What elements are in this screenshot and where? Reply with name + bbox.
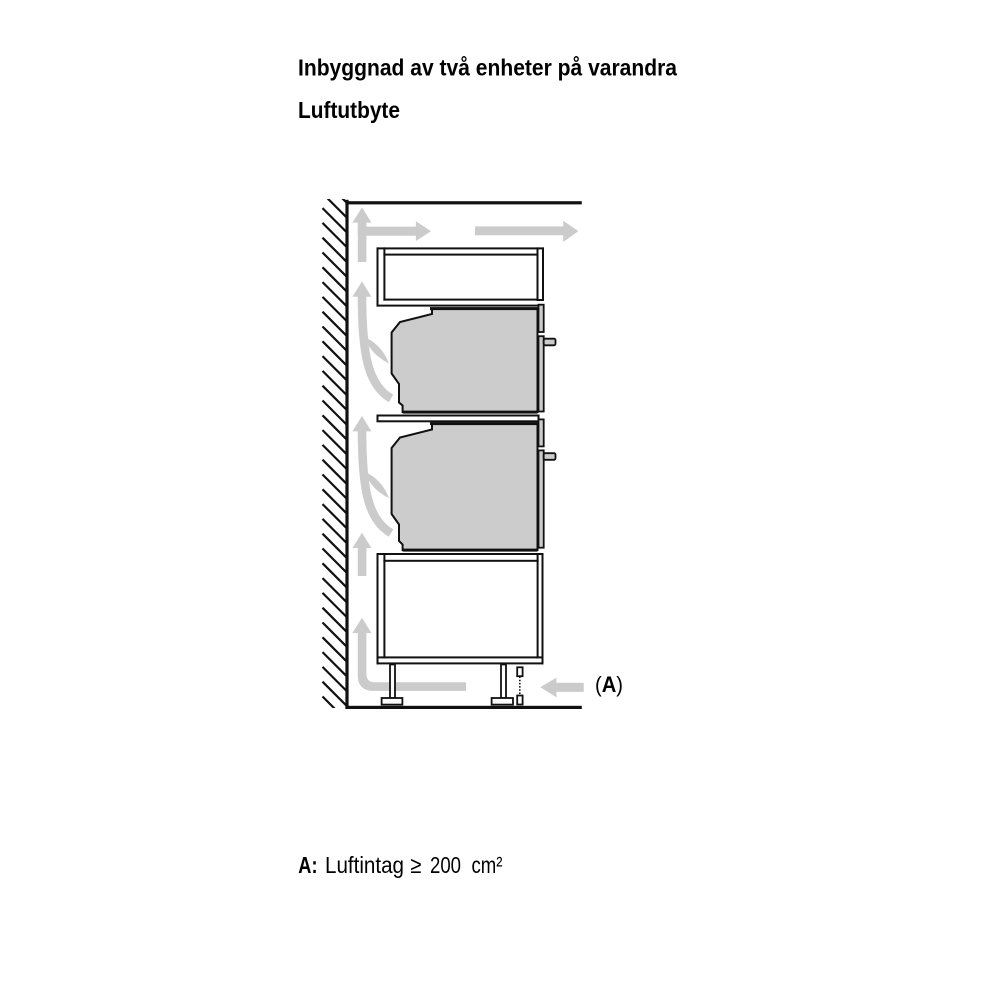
svg-text:Inbyggnad av två enheter på va: Inbyggnad av två enheter på varandra	[298, 55, 678, 81]
svg-text:(A): (A)	[595, 672, 623, 697]
svg-text:200: 200	[430, 852, 461, 878]
svg-text:Luftintag: Luftintag	[325, 852, 404, 878]
svg-text:≥: ≥	[411, 852, 422, 878]
svg-text:Luftutbyte: Luftutbyte	[298, 97, 400, 123]
svg-text:cm²: cm²	[472, 852, 503, 878]
svg-text:A:: A:	[298, 852, 317, 878]
